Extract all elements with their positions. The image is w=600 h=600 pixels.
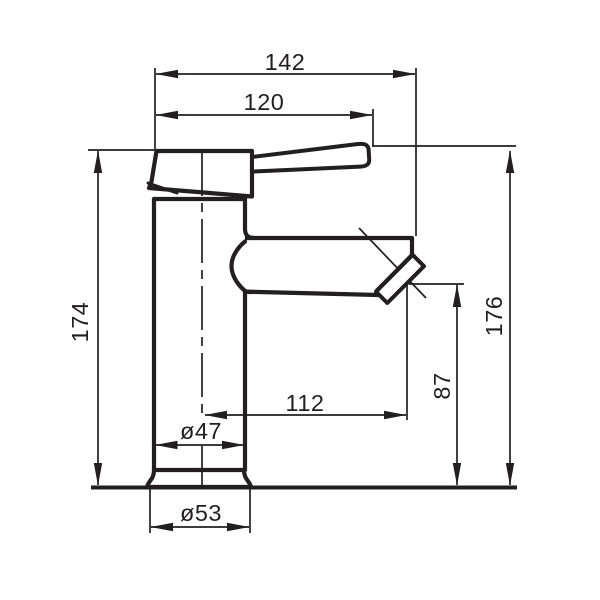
drawing-canvas: 142 120 112 174 176 87 ø47 ø53 xyxy=(0,0,600,600)
label-total-projection: 142 xyxy=(265,49,306,75)
label-base-diameter: ø53 xyxy=(180,500,222,526)
column-right-upper-edge xyxy=(245,199,254,238)
base-flange xyxy=(147,470,251,487)
label-spout-reach: 112 xyxy=(286,390,325,416)
label-handle-projection: 120 xyxy=(244,89,285,115)
label-height-right: 176 xyxy=(481,296,507,337)
label-outlet-height: 87 xyxy=(429,372,455,399)
label-body-diameter: ø47 xyxy=(180,418,222,444)
faucet-technical-drawing: 142 120 112 174 176 87 ø47 ø53 xyxy=(0,0,600,600)
handle-lever xyxy=(252,144,369,172)
label-height-left: 174 xyxy=(67,302,93,343)
